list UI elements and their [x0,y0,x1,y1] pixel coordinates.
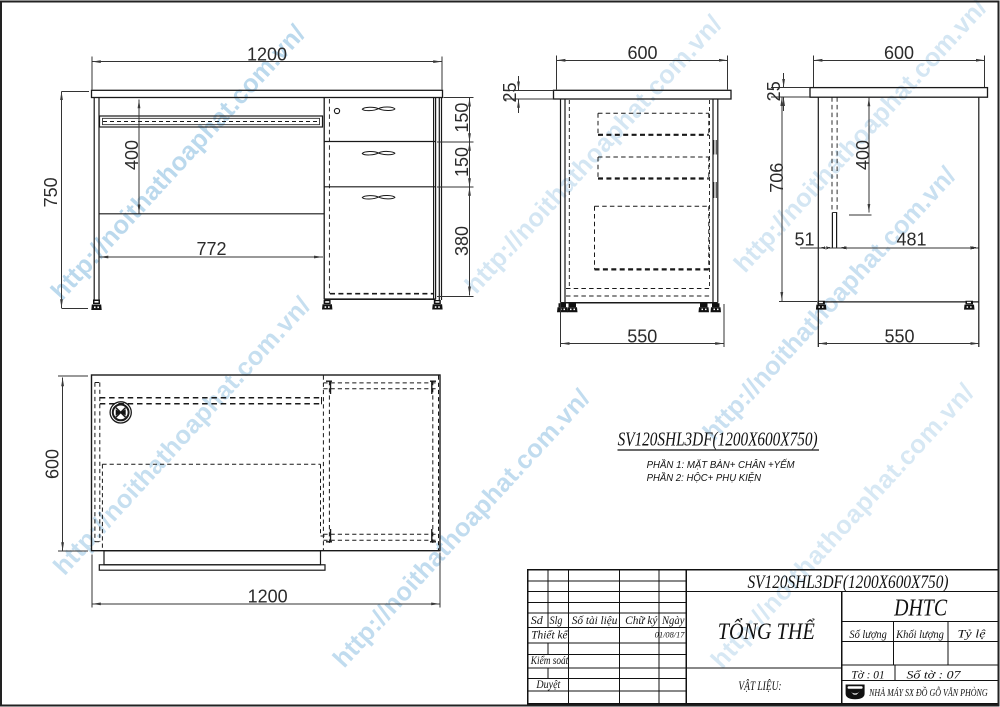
svg-text:SV120SHL3DF(1200X600X750): SV120SHL3DF(1200X600X750) [748,572,949,593]
svg-text:Thiết kế: Thiết kế [531,628,569,642]
svg-text:550: 550 [884,326,914,346]
svg-text:TỔNG THỂ: TỔNG THỂ [718,618,815,644]
svg-text:25: 25 [500,82,520,102]
svg-text:750: 750 [41,177,61,207]
svg-text:SV120SHL3DF(1200X600X750): SV120SHL3DF(1200X600X750) [618,428,818,450]
svg-text:706: 706 [767,163,787,193]
svg-text:25: 25 [764,81,784,101]
svg-text:600: 600 [884,43,914,63]
svg-text:150: 150 [452,103,472,133]
svg-text:Ngày: Ngày [661,613,685,627]
svg-text:600: 600 [627,43,657,63]
svg-text:400: 400 [853,140,873,170]
svg-text:772: 772 [196,239,226,259]
svg-text:Tờ : 01: Tờ : 01 [851,668,884,682]
svg-text:150: 150 [452,147,472,177]
svg-text:Chữ ký: Chữ ký [625,613,658,627]
svg-text:PHẦN 2: HỘC+ PHỤ KIỆN: PHẦN 2: HỘC+ PHỤ KIỆN [647,471,762,484]
svg-text:VẬT LIỆU:: VẬT LIỆU: [738,678,781,693]
svg-text:Số tài liệu: Số tài liệu [572,613,618,627]
svg-text:Số lượng: Số lượng [849,627,886,641]
svg-text:600: 600 [43,449,63,479]
svg-text:PHẦN 1: MẶT BÀN+ CHÂN +YẾM: PHẦN 1: MẶT BÀN+ CHÂN +YẾM [647,458,796,471]
svg-text:1200: 1200 [248,586,288,606]
svg-text:550: 550 [627,326,657,346]
svg-text:Sd: Sd [531,613,544,627]
svg-text:NHÀ MÁY SX ĐỒ GỖ VĂN PHÒNG: NHÀ MÁY SX ĐỒ GỖ VĂN PHÒNG [868,686,987,699]
svg-text:380: 380 [452,226,472,256]
svg-text:481: 481 [896,229,926,249]
svg-text:Duyệt: Duyệt [536,677,561,691]
svg-text:01/08/17: 01/08/17 [655,629,685,639]
svg-text:51: 51 [794,229,814,249]
svg-text:Tỷ lệ: Tỷ lệ [958,627,987,641]
svg-text:Kiểm soát: Kiểm soát [530,653,569,667]
svg-text:400: 400 [122,140,142,170]
svg-text:Slg: Slg [550,613,563,627]
svg-text:Khối lượng: Khối lượng [895,627,944,641]
svg-text:1200: 1200 [247,45,287,65]
svg-text:Số tờ : 07: Số tờ : 07 [907,668,962,682]
svg-text:DHTC: DHTC [893,595,948,621]
